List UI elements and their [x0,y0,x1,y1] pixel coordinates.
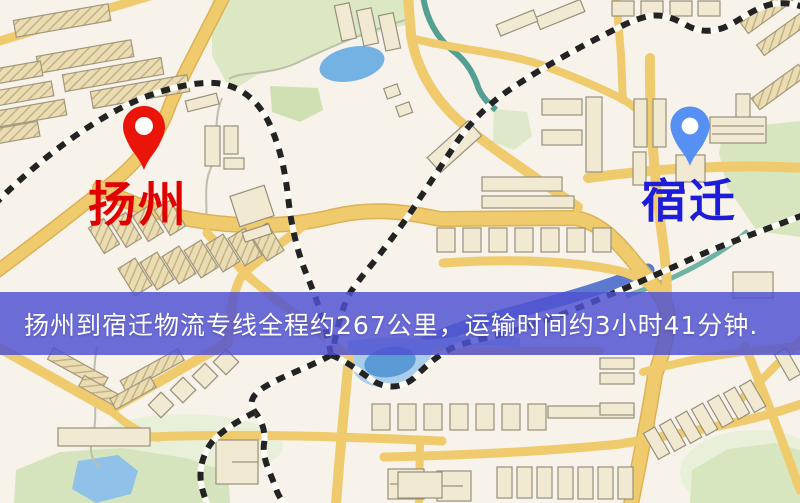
destination-pin-hole [682,118,699,135]
destination-label: 宿迁 [641,174,737,228]
route-info-banner: 扬州到宿迁物流专线全程约267公里，运输时间约3小时41分钟. [0,292,800,355]
route-info-text: 扬州到宿迁物流专线全程约267公里，运输时间约3小时41分钟. [24,306,758,342]
map-screenshot: 宿迁 扬州 扬州到宿迁物流专线全程约267公里，运输时间约3小时41分钟. [0,0,800,503]
origin-label: 扬州 [88,177,188,233]
map-canvas[interactable]: 宿迁 扬州 [0,0,800,503]
origin-pin-hole [135,117,153,135]
